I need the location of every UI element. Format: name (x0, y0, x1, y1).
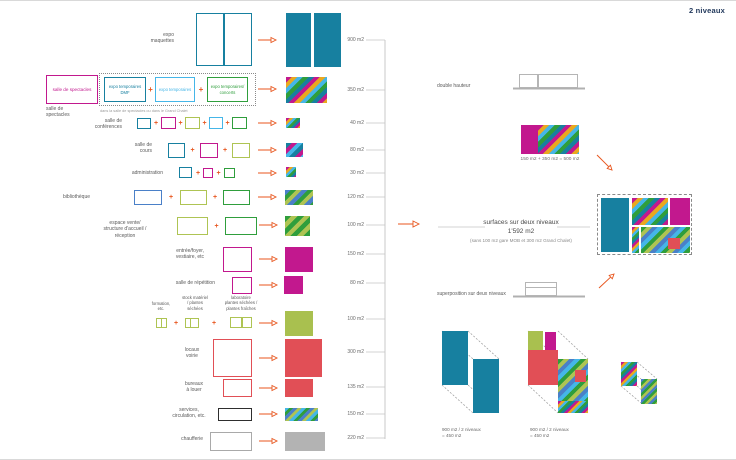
program-box-bibliotheque-2 (180, 190, 207, 205)
plus-icon: + (152, 119, 160, 128)
iso-label-2: 900 m2 / 2 niveaux = 450 m2 (530, 427, 569, 439)
area-ateliers-plantes: 100 m2 (244, 316, 364, 322)
composite-striped-strip (632, 227, 639, 253)
area-salle-de-spectacles-line: 350 m2 (244, 87, 364, 93)
arrow-icon (272, 356, 277, 361)
label-ateliers-plantes-3-line: plantes fraîches (181, 306, 301, 311)
superposition-label: superposition sur deux niveaux (437, 291, 506, 297)
summary-title: surfaces sur deux niveaux (440, 219, 602, 226)
area-bibliotheque: 120 m2 (244, 194, 364, 200)
composite-plan (597, 194, 692, 255)
summary-total: 1'592 m2 (440, 228, 602, 235)
composite-magenta-block (670, 198, 690, 225)
area-bureaux-a-louer-line: 135 m2 (244, 384, 364, 390)
area-salle-de-cours-line: 80 m2 (244, 147, 364, 153)
program-box-salle-de-conferences-1 (137, 118, 151, 129)
arrow-icon (413, 221, 419, 227)
plus-icon: + (172, 319, 180, 328)
area-bureaux-a-louer: 135 m2 (244, 384, 364, 390)
superposition-box (525, 282, 557, 296)
plus-icon: + (224, 119, 232, 128)
program-box-expo-maquettes-1-divider (223, 14, 225, 65)
area-salle-de-cours: 80 m2 (244, 147, 364, 153)
composite-striped-block-a (632, 198, 668, 225)
plus-icon: + (177, 119, 185, 128)
iso-label-1: 900 m2 / 2 niveaux = 450 m2 (442, 427, 481, 439)
label-administration: administration (43, 170, 163, 176)
arrow-icon (272, 257, 277, 262)
area-salle-de-spectacles: 350 m2 (244, 87, 364, 93)
area-expo-maquettes: 900 m2 (244, 37, 364, 43)
area-chaufferie: 220 m2 (244, 435, 364, 441)
label-salle-de-cours: salle decours (32, 142, 152, 155)
arrow-icon (609, 274, 614, 279)
label-entree-foyer-line: vestiaire, etc (84, 254, 204, 260)
summary-note: (sans 100 m2 gare MOB et 300 m2 Grand Ch… (440, 238, 602, 243)
program-box-administration-3 (224, 168, 235, 178)
iso3-level-1 (621, 362, 637, 386)
composite-striped-block-b (641, 227, 690, 253)
caption-salle-de-spectacles-line: dans la salle de spectacles ou dans le G… (100, 109, 188, 114)
connector-line (621, 386, 641, 403)
program-box-locaux-voirie-1 (213, 339, 252, 377)
label-salle-de-repetition: salle de répétition (95, 280, 215, 286)
area-administration-line: 30 m2 (244, 170, 364, 176)
area-salle-de-repetition-line: 80 m2 (244, 280, 364, 286)
iso2-striped-strip (558, 401, 588, 413)
program-box-salle-de-cours-1 (168, 143, 185, 158)
plus-icon: + (211, 193, 219, 202)
label-salle-de-spectacles: salle despectacles (46, 106, 70, 119)
label-salle-de-cours-line: cours (32, 148, 152, 154)
iso3-level-2 (641, 379, 657, 404)
plus-icon: + (221, 146, 229, 155)
iso1-level-1 (442, 331, 468, 385)
plus-icon: + (210, 319, 218, 328)
program-diagram-canvas: 2 niveaux surfaces sur deux niveaux 1'59… (0, 0, 736, 460)
program-box-salle-de-conferences-2 (161, 117, 176, 129)
program-box-salle-de-cours-2 (200, 143, 218, 158)
area-administration: 30 m2 (244, 170, 364, 176)
program-box-salle-de-spectacles-2: expo temporaires DMF (104, 77, 146, 102)
addition-solid-swatch (521, 125, 538, 154)
program-box-salle-de-conferences-3 (185, 117, 200, 129)
iso2-red-square (575, 370, 586, 382)
program-box-administration-2 (203, 168, 213, 178)
program-box-ateliers-plantes-3-divider (241, 318, 242, 327)
label-ateliers-plantes-3: laboratoireplantes séchées /plantes fraî… (181, 295, 301, 311)
iso-label-2-line2: = 450 m2 (530, 433, 569, 439)
program-box-ateliers-plantes-2-divider (190, 319, 191, 327)
connector-line (637, 362, 657, 379)
connector-line (442, 385, 473, 413)
label-entree-foyer: entrée/foyer,vestiaire, etc (84, 248, 204, 261)
plus-icon: + (167, 193, 175, 202)
area-services-circulation-line: 150 m2 (244, 411, 364, 417)
area-locaux-voirie: 300 m2 (244, 349, 364, 355)
superposition-box-divider (526, 287, 556, 288)
program-box-salle-de-conferences-4 (209, 117, 223, 129)
label-expo-maquettes: expomaquettes (54, 32, 174, 45)
area-chaufferie-line: 220 m2 (244, 435, 364, 441)
label-espace-vente: espace vente/structure d'accueil /récept… (65, 220, 185, 239)
area-bibliotheque-line: 120 m2 (244, 194, 364, 200)
iso2-magenta-block (545, 332, 556, 350)
addition-label: 150 m2 + 350 m2 = 500 m2 (489, 157, 611, 162)
iso-label-1-line2: = 450 m2 (442, 433, 481, 439)
plus-icon: + (197, 85, 205, 94)
double-hauteur-box-2 (538, 74, 578, 88)
area-salle-de-conferences: 40 m2 (244, 120, 364, 126)
arrow-icon (607, 165, 612, 170)
program-box-salle-de-spectacles-1: salle de spectacles (46, 75, 98, 104)
label-salle-de-conferences: salle deconférences (2, 118, 122, 131)
area-services-circulation: 150 m2 (244, 411, 364, 417)
area-salle-de-repetition: 80 m2 (244, 280, 364, 286)
area-expo-maquettes-line: 900 m2 (244, 37, 364, 43)
label-bibliotheque-line: bibliothèque (0, 194, 90, 200)
label-chaufferie: chaufferie (83, 436, 203, 442)
program-box-ateliers-plantes-1-divider (161, 319, 162, 327)
addition-striped-swatch (538, 125, 579, 154)
program-box-administration-1 (179, 167, 192, 178)
plus-icon: + (189, 146, 197, 155)
program-box-ateliers-plantes-2 (185, 318, 199, 328)
program-box-salle-de-spectacles-4: expo temporaires/ concerts (207, 77, 248, 102)
label-administration-line: administration (43, 170, 163, 176)
program-box-espace-vente-1 (177, 217, 208, 235)
label-bibliotheque: bibliothèque (0, 194, 90, 200)
program-box-ateliers-plantes-1 (156, 318, 167, 328)
connector-line (599, 277, 611, 288)
result-swatch-locaux-voirie (285, 339, 322, 377)
connector-line (528, 385, 558, 413)
summary-block: surfaces sur deux niveaux 1'592 m2 (sans… (440, 219, 602, 243)
label-espace-vente-line: réception (65, 233, 185, 239)
area-espace-vente-line: 100 m2 (244, 222, 364, 228)
connector-line (468, 331, 499, 359)
area-ateliers-plantes-line: 100 m2 (244, 316, 364, 322)
area-entree-foyer: 150 m2 (244, 251, 364, 257)
caption-salle-de-spectacles: dans la salle de spectacles ou dans le G… (100, 109, 188, 114)
composite-red-block (668, 238, 680, 249)
iso2-red-block (528, 350, 558, 385)
program-box-salle-de-spectacles-3: expo temporaires (155, 77, 195, 102)
label-expo-maquettes-line: maquettes (54, 38, 174, 44)
label-chaufferie-line: chaufferie (83, 436, 203, 442)
label-salle-de-conferences-line: conférences (2, 124, 122, 130)
label-salle-de-repetition-line: salle de répétition (95, 280, 215, 286)
area-locaux-voirie-line: 300 m2 (244, 349, 364, 355)
program-box-bibliotheque-1 (134, 190, 162, 205)
connector-line (558, 331, 588, 359)
double-hauteur-label: double hauteur (437, 83, 470, 89)
plus-icon: + (194, 169, 202, 178)
plus-icon: + (147, 85, 155, 94)
double-hauteur-box-1 (519, 74, 538, 88)
area-entree-foyer-line: 150 m2 (244, 251, 364, 257)
plus-icon: + (213, 222, 221, 231)
area-espace-vente: 100 m2 (244, 222, 364, 228)
plus-icon: + (215, 169, 223, 178)
iso2-olive-block (528, 331, 543, 350)
plus-icon: + (201, 119, 209, 128)
area-salle-de-conferences-line: 40 m2 (244, 120, 364, 126)
composite-teal-block (601, 198, 629, 252)
corner-label: 2 niveaux (689, 6, 725, 15)
iso1-level-2 (473, 359, 499, 413)
